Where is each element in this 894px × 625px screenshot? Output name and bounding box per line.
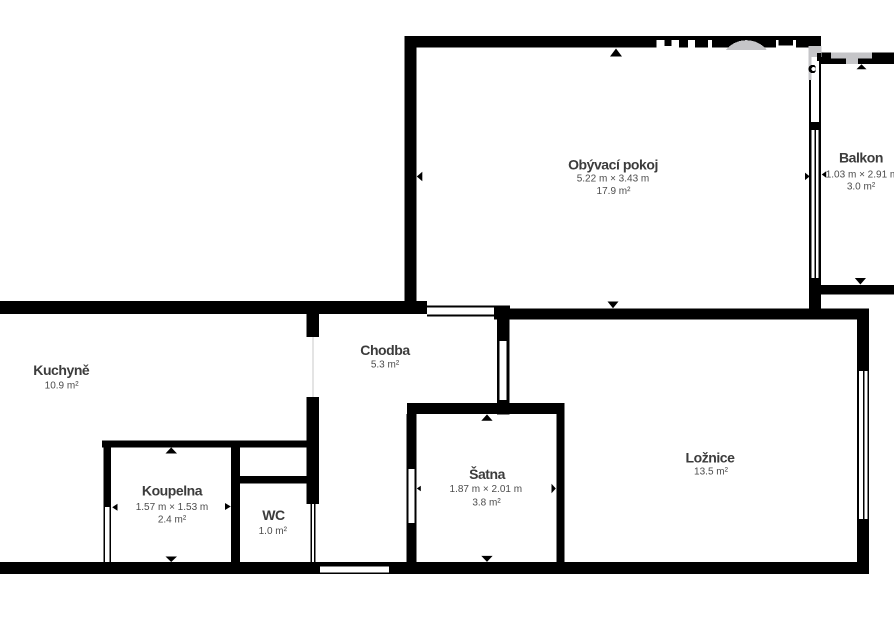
svg-text:Kuchyně: Kuchyně	[33, 362, 90, 378]
svg-text:10.9 m²: 10.9 m²	[45, 381, 80, 392]
svg-text:3.0 m²: 3.0 m²	[847, 182, 876, 193]
svg-text:Koupelna: Koupelna	[142, 483, 203, 499]
svg-text:1.87 m × 2.01 m: 1.87 m × 2.01 m	[450, 484, 523, 495]
svg-text:WC: WC	[262, 507, 285, 523]
svg-text:Obývací pokoj: Obývací pokoj	[568, 157, 658, 173]
svg-text:Chodba: Chodba	[360, 342, 410, 358]
svg-text:Balkon: Balkon	[839, 150, 883, 166]
svg-text:Ložnice: Ložnice	[686, 449, 736, 465]
svg-text:3.8 m²: 3.8 m²	[472, 498, 501, 509]
svg-text:5.3 m²: 5.3 m²	[371, 359, 400, 370]
svg-text:Šatna: Šatna	[469, 465, 506, 482]
svg-text:1.57 m × 1.53 m: 1.57 m × 1.53 m	[136, 502, 209, 513]
svg-text:1.0 m²: 1.0 m²	[259, 526, 288, 537]
svg-text:1.03 m × 2.91 m: 1.03 m × 2.91 m	[826, 169, 894, 180]
svg-text:13.5 m²: 13.5 m²	[694, 466, 729, 477]
svg-text:2.4 m²: 2.4 m²	[158, 515, 187, 526]
svg-text:5.22 m × 3.43 m: 5.22 m × 3.43 m	[577, 174, 650, 185]
svg-text:17.9 m²: 17.9 m²	[597, 186, 632, 197]
